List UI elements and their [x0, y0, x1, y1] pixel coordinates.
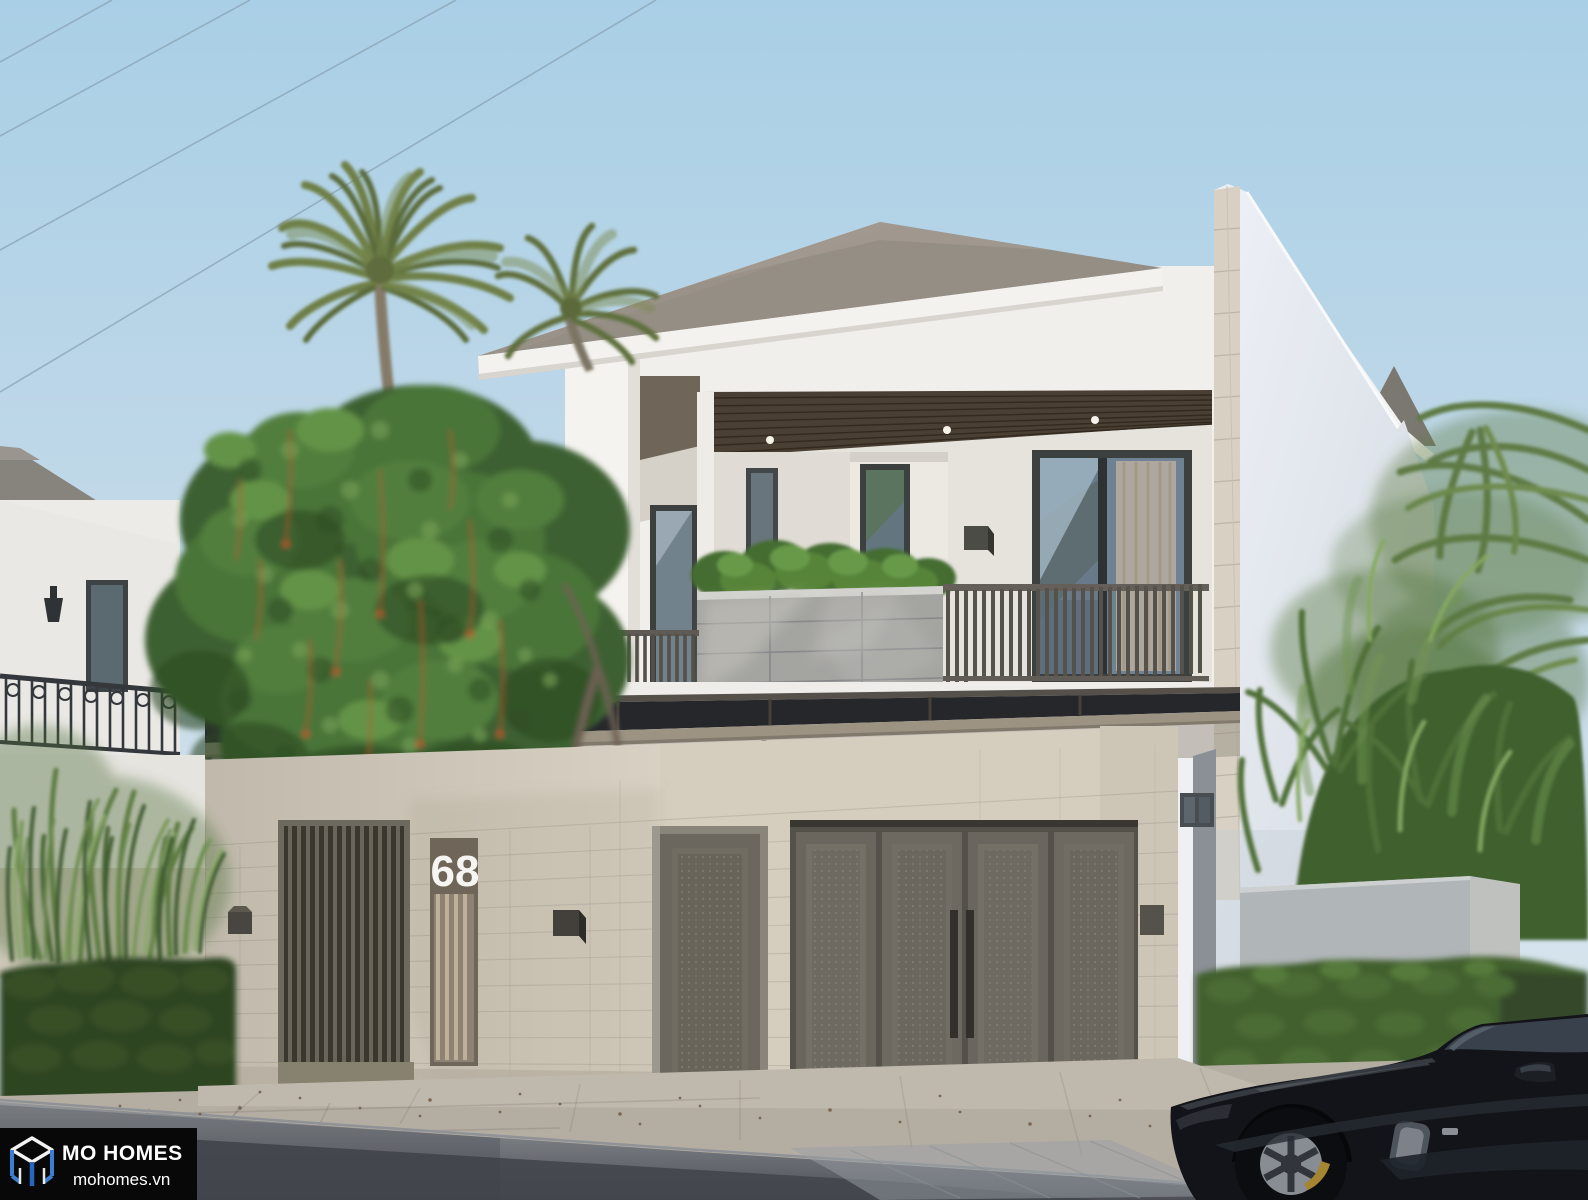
svg-text:mohomes.vn: mohomes.vn — [73, 1170, 170, 1189]
svg-text:68: 68 — [431, 847, 480, 896]
svg-text:MO HOMES: MO HOMES — [62, 1142, 183, 1165]
